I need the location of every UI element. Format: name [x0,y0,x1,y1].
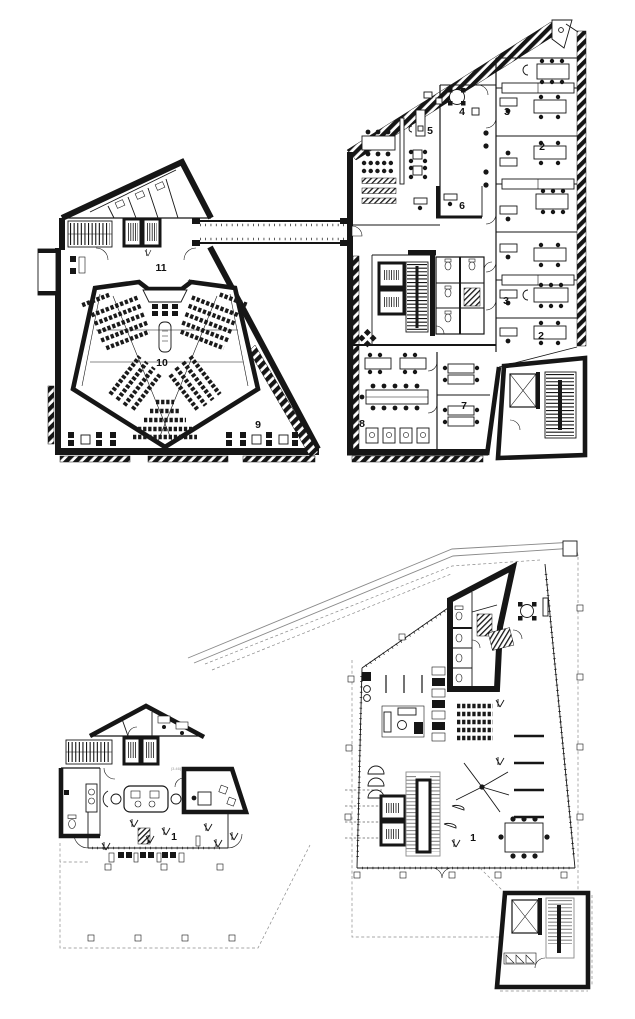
plant-marks [145,249,194,286]
locker-stack [432,667,445,741]
label-room-1-right: 1 [470,832,476,844]
floor-plan-sheet: 4 5 3 2 6 3 2 7 8 9 10 11 1 1 (3.46) [0,0,635,1019]
ground-office [175,769,246,812]
label-level-note: (3.46) [171,766,182,771]
bridge-corridor [192,218,362,246]
stairs-upper-right [406,262,428,332]
label-room-7: 7 [461,400,467,412]
site-lines-left [60,843,310,948]
label-room-2b: 2 [538,330,544,342]
label-room-3a: 3 [504,106,510,118]
ground-wc-core [450,567,514,689]
ground-floor-plan [60,541,592,991]
label-room-6: 6 [459,200,465,212]
upper-left-building [38,162,319,462]
cafe-table [513,598,548,639]
core-stairs [545,372,576,438]
label-room-9: 9 [255,419,261,431]
lounge-benches [366,428,429,443]
label-room-10: 10 [156,357,168,369]
dining-table [498,816,549,858]
upper-stair-core [498,358,585,458]
room-8-conference [360,352,437,450]
elevators-upper-right [379,263,404,314]
ground-circulation [381,772,440,856]
label-room-11: 11 [155,262,166,274]
label-room-8: 8 [359,418,365,430]
label-room-1-left: 1 [171,831,177,843]
corner-balcony [552,20,572,48]
ground-left-building [60,706,310,948]
ground-right-building [345,557,583,937]
label-room-4: 4 [459,106,465,118]
ground-stair-core [497,893,592,991]
plans-drawing: 4 5 3 2 6 3 2 7 8 9 10 11 1 1 (3.46) [0,0,635,1019]
reception-desk [103,768,189,812]
flower-tubs [368,766,384,798]
elevators-ground-left [124,738,158,764]
bench-bars [514,736,544,817]
lounge-group [382,706,424,737]
hatched-east-wall [577,31,586,346]
stairs-ground-left [66,740,112,764]
ceiling-fan [456,763,509,812]
label-room-3b: 3 [503,295,509,307]
stairs-upper-left [62,218,112,250]
annex-kitchen [61,768,100,836]
office-furniture [486,59,569,345]
terrace-plants [102,819,238,850]
elevators-upper-left [124,219,160,246]
label-room-5: 5 [427,125,433,137]
left-balcony [38,249,85,295]
label-room-2a: 2 [539,141,545,153]
audience-chair-rows [457,706,493,738]
upper-floor-plan [38,20,586,462]
